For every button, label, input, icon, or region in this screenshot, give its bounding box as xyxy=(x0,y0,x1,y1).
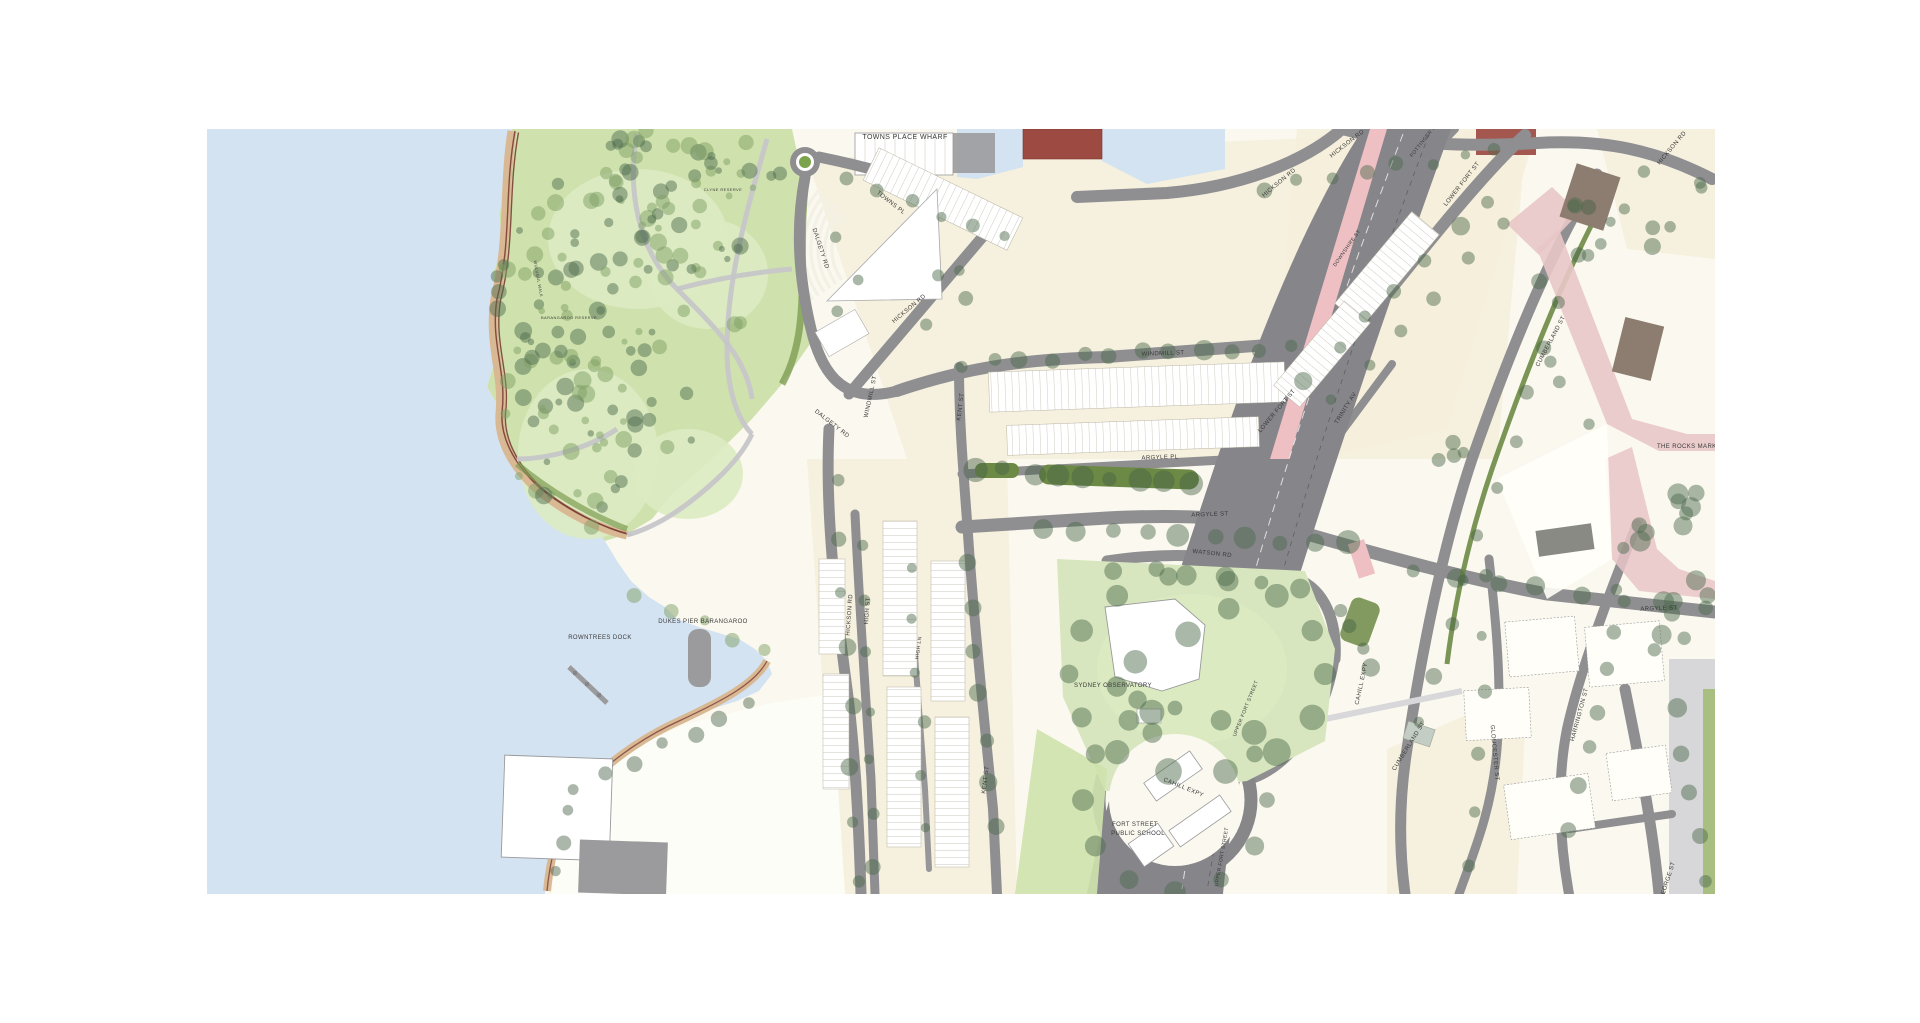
site-plan-page: TOWNS PLACE WHARFTOWNS PLDALGETY RDDALGE… xyxy=(0,0,1920,1023)
map-label: TOWNS PLACE WHARF xyxy=(862,134,947,141)
map-label: ROWNTREES DOCK xyxy=(568,635,632,641)
map-label: BARANGAROO RESERVE xyxy=(541,315,597,320)
map-label: DUKES PIER BARANGAROO xyxy=(658,619,747,625)
site-plan-canvas: TOWNS PLACE WHARFTOWNS PLDALGETY RDDALGE… xyxy=(207,129,1715,894)
map-label: THE ROCKS MARKET xyxy=(1657,444,1715,450)
map-label: SYDNEY OBSERVATORY xyxy=(1074,683,1152,689)
map-label: PUBLIC SCHOOL xyxy=(1111,831,1165,837)
map-label: CLYNE RESERVE xyxy=(704,187,742,192)
site-plan-map: TOWNS PLACE WHARFTOWNS PLDALGETY RDDALGE… xyxy=(207,129,1715,894)
map-label: FORT STREET xyxy=(1112,822,1158,828)
